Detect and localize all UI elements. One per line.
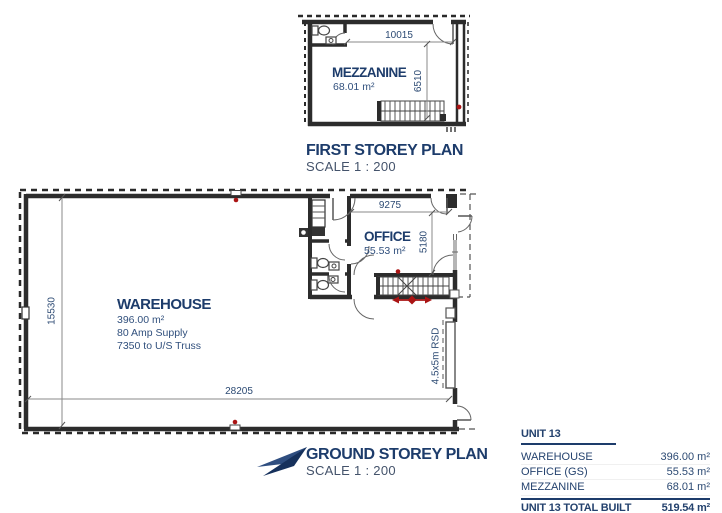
- dim-label: 5180: [419, 230, 430, 253]
- vent-marker: [230, 420, 240, 430]
- mezzanine-stairs: [377, 101, 446, 121]
- total-label: UNIT 13 TOTAL BUILT: [521, 502, 631, 513]
- glazing-panel: [452, 234, 458, 270]
- basin-icon: [326, 37, 336, 44]
- red-marker-dot: [457, 105, 462, 110]
- office-label: OFFICE: [364, 229, 411, 244]
- first-storey-scale: SCALE 1 : 200: [306, 159, 396, 174]
- mezzanine-label: MEZZANINE: [332, 65, 407, 80]
- office-area-label: 55.53 m²: [364, 245, 406, 257]
- floor-plan-sheet: 10015 6510 MEZZANINE 68.01 m² FIRST STOR…: [0, 0, 722, 513]
- wall-panel-joint: [22, 307, 29, 319]
- door-arc: [433, 24, 453, 44]
- ground-storey-plan: 9275 5180 15530 28205 4.5x5m RSD WAREHOU…: [20, 190, 488, 478]
- north-arrow-icon: [257, 447, 307, 476]
- first-storey-title: FIRST STOREY PLAN: [306, 142, 463, 159]
- row-value: 396.00 m²: [660, 450, 710, 464]
- first-storey-plan: 10015 6510 MEZZANINE 68.01 m² FIRST STOR…: [298, 16, 470, 174]
- geyser-icon: [299, 228, 308, 237]
- warehouse-area-label: 396.00 m²: [117, 314, 165, 326]
- row-value: 68.01 m²: [667, 480, 710, 494]
- dimension-overall-height: 15530: [47, 194, 66, 429]
- row-label: WAREHOUSE: [521, 450, 593, 464]
- dim-label: 9275: [379, 200, 402, 211]
- dim-label: 28205: [225, 386, 253, 397]
- warehouse-label: WAREHOUSE: [117, 296, 211, 313]
- dimension-office-depth: 5180: [419, 210, 436, 276]
- ground-storey-title: GROUND STOREY PLAN: [306, 446, 488, 463]
- table-row: WAREHOUSE 396.00 m²: [521, 450, 710, 465]
- table-total-row: UNIT 13 TOTAL BUILT 519.54 m²: [521, 498, 710, 513]
- toilet-icon: [312, 26, 330, 35]
- ground-stairs: [376, 277, 449, 295]
- rsd-label: 4.5x5m RSD: [431, 328, 442, 385]
- dim-label: 6510: [413, 69, 424, 92]
- basin-icon: [329, 262, 339, 270]
- toilet-icon: [311, 280, 329, 290]
- dimension-office-width: 9275: [348, 200, 452, 215]
- unit-header: UNIT 13: [521, 428, 616, 445]
- table-row: MEZZANINE 68.01 m²: [521, 480, 710, 495]
- dim-label: 15530: [47, 297, 58, 325]
- ground-storey-scale: SCALE 1 : 200: [306, 463, 396, 478]
- dim-label: 10015: [385, 30, 413, 41]
- warehouse-truss-label: 7350 to U/S Truss: [117, 340, 201, 352]
- mezzanine-area-label: 68.01 m²: [333, 81, 375, 93]
- dimension-mezzanine-width: 10015: [344, 30, 456, 45]
- dimension-overall-width: 28205: [25, 386, 452, 402]
- unit-summary-table: UNIT 13 WAREHOUSE 396.00 m² OFFICE (GS) …: [521, 428, 710, 513]
- toilet-icon: [311, 258, 329, 268]
- row-label: OFFICE (GS): [521, 465, 588, 479]
- row-label: MEZZANINE: [521, 480, 585, 494]
- red-marker-dot: [396, 269, 401, 274]
- mezzanine-wc-room: [310, 22, 347, 45]
- warehouse-supply-label: 80 Amp Supply: [117, 327, 188, 339]
- row-value: 55.53 m²: [667, 465, 710, 479]
- table-row: OFFICE (GS) 55.53 m²: [521, 465, 710, 480]
- duct-riser: [312, 200, 325, 236]
- boundary-dashed-line: [457, 194, 479, 429]
- total-value: 519.54 m²: [662, 502, 710, 513]
